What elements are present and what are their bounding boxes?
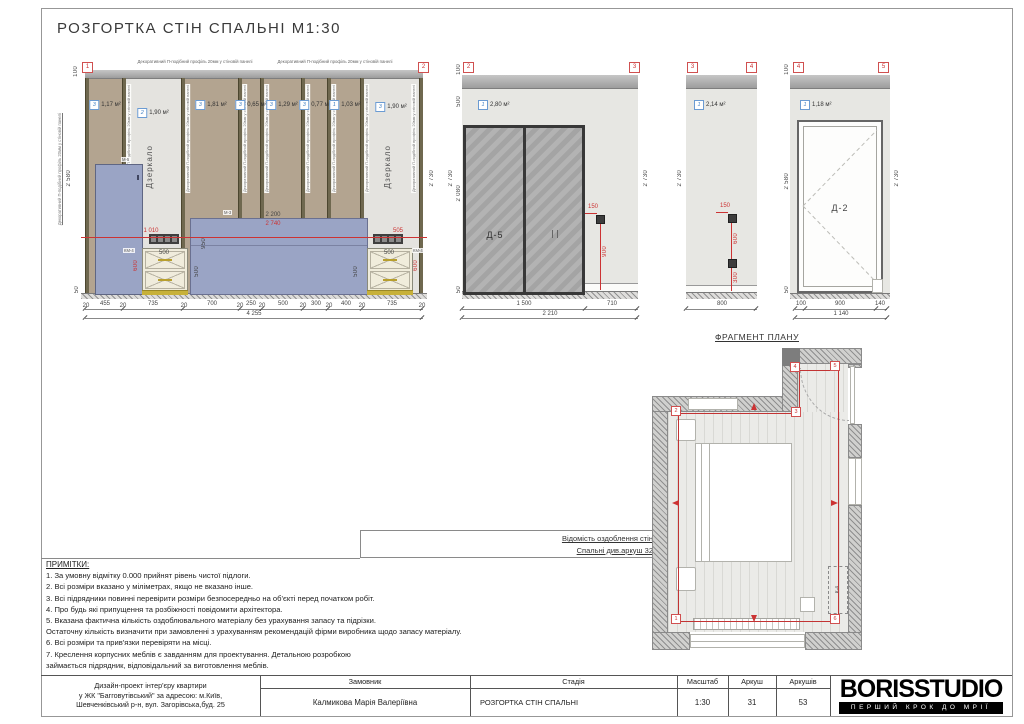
dim-line [462, 318, 638, 319]
dim-label: 20 [259, 303, 266, 309]
socket [728, 214, 737, 223]
finish-label: 12,80 м² [478, 100, 509, 110]
finish-code: 3 [235, 100, 245, 110]
project-info: Дизайн-проект інтер'єру квартири у ЖК "Б… [41, 675, 260, 716]
door-block [872, 279, 883, 293]
dim-total: 1 140 [833, 311, 848, 317]
dim-label: 20 [237, 303, 244, 309]
scale-label: Масштаб [677, 675, 728, 688]
door-leaf-plan [850, 366, 855, 424]
mattress-line [191, 245, 367, 246]
dim-label-red: 300 [733, 272, 739, 283]
dim-line [462, 309, 638, 310]
dim-label: 300 [311, 301, 321, 307]
dim-label: 500 [159, 250, 169, 256]
wall-shelf [149, 234, 179, 244]
dim-label: 140 [875, 301, 885, 307]
profile-note-vertical: Декоративний П-подібний профіль 20мм у с… [185, 84, 190, 193]
plan-marker: 3 [791, 407, 801, 417]
switch [596, 215, 605, 224]
dim-label: 710 [607, 301, 617, 307]
dim-label-red: 600 [133, 260, 139, 271]
nightstand-base [367, 290, 413, 295]
dim-label: 735 [387, 301, 397, 307]
dim-label: 50 [456, 286, 462, 293]
floor-hatch [686, 292, 757, 299]
dim-label: 500 [278, 301, 288, 307]
window [848, 458, 862, 505]
finish-label: 11,18 м² [800, 100, 831, 110]
dim-label: 1 500 [516, 301, 531, 307]
door-pane [526, 128, 583, 292]
dim-line [686, 309, 757, 310]
finish-schedule-note: Відомість оздоблення стін Спальні див.ар… [360, 530, 660, 558]
finish-code: 1 [478, 100, 488, 110]
nightstand-plan [676, 567, 696, 591]
wall-marker: 2 [463, 62, 474, 73]
dim-label: 20 [83, 303, 90, 309]
dim-label: 2 580 [66, 170, 72, 187]
pillow-line [709, 444, 710, 561]
dim-label: 100 [784, 64, 790, 75]
wall-marker: 4 [793, 62, 804, 73]
plan-marker: 2 [671, 406, 681, 416]
logo-slogan: ПЕРШИЙ КРОК ДО МРІЇ [839, 702, 1003, 714]
project-line: Шевченківський р-н, вул. Загорівська,буд… [76, 700, 225, 709]
profile-note-vertical: Декоративний П-подібний профіль 20мм у с… [411, 84, 416, 193]
bed-plan [695, 443, 792, 562]
dim-label-red: 2 740 [265, 221, 280, 227]
view-arrow-down [751, 615, 757, 622]
dim-label: 500 [353, 266, 359, 277]
drawer-handle [383, 259, 397, 261]
project-line: Дизайн-проект інтер'єру квартири [94, 681, 206, 690]
profile-note-vertical: Декоративний П-подібний профіль 20мм у с… [364, 84, 369, 193]
finish-code: 3 [195, 100, 205, 110]
radiator [693, 618, 800, 630]
finish-code: 1 [800, 100, 810, 110]
finish-code: 3 [375, 102, 385, 112]
headboard-line [701, 444, 702, 561]
dim-label-red: 1 010 [143, 228, 158, 234]
note-line: 2. Всі розміри вказано у міліметрах, якщ… [46, 581, 736, 592]
dim-label: 500 [384, 250, 394, 256]
dim-label: 100 [73, 66, 79, 77]
finish-code: 1 [329, 100, 339, 110]
plan-title: ФРАГМЕНТ ПЛАНУ [715, 332, 799, 342]
note-line: 3. Всі підрядники повинні перевірити роз… [46, 593, 736, 604]
nightstand-plan [676, 419, 696, 441]
door-d5 [463, 125, 585, 295]
sheets-total-label: Аркушів [776, 675, 830, 688]
note-line: 5. Вказана фактична кількість оздоблювал… [46, 615, 736, 626]
finish-code: 3 [89, 100, 99, 110]
dim-line-red [716, 212, 728, 213]
dim-label-red: 900 [602, 246, 608, 257]
view-arrow-right [831, 500, 838, 506]
dim-label: 500 [456, 96, 462, 107]
dim-label: 2 730 [677, 170, 683, 187]
dim-label: 700 [207, 301, 217, 307]
dim-label: 20 [181, 303, 188, 309]
drawer [145, 271, 185, 289]
furniture-tag: М-5 [121, 157, 130, 162]
dim-label: 20 [120, 303, 127, 309]
ceiling-profile [686, 75, 757, 89]
dim-label-red: 150 [720, 203, 730, 209]
finish-code: 3 [299, 100, 309, 110]
plan-marker: 5 [830, 361, 840, 371]
drawer-handle [158, 279, 172, 281]
profile-note-vertical: Декоративний П-подібний профіль 20мм у с… [57, 112, 62, 226]
finish-label: 11,03 м² [329, 100, 360, 110]
dim-label: 500 [194, 266, 200, 277]
finish-label: 31,17 м² [89, 100, 120, 110]
finish-label: 31,90 м² [375, 102, 406, 112]
dim-label: 2 580 [784, 173, 790, 190]
wall-marker: 3 [687, 62, 698, 73]
plan-wall [805, 632, 862, 650]
note-line: 1. За умовну відмітку 0.000 прийнят ріве… [46, 570, 736, 581]
dim-label: 20 [359, 303, 366, 309]
wall-34 [686, 88, 757, 285]
dim-label: 400 [341, 301, 351, 307]
note-line: Остаточну кількість визначити при замовл… [46, 626, 736, 637]
wardrobe [95, 164, 143, 295]
dim-line [795, 318, 887, 319]
sheets-total-value: 53 [776, 688, 830, 716]
finish-code: 1 [694, 100, 704, 110]
furniture-tag: КМ-4 [123, 248, 135, 253]
logo-text: BORISSTUDIO [835, 677, 1007, 701]
dim-label: 20 [300, 303, 307, 309]
finish-label: 30,77 м² [299, 100, 330, 110]
finish-label: 31,81 м² [195, 100, 226, 110]
project-line: у ЖК "Багговутівський" за адресою: м.Киї… [79, 691, 222, 700]
elevation-1: Декоративний П-подібний профіль 20мм у с… [85, 70, 423, 298]
dim-label-red: 600 [413, 260, 419, 271]
note-line: 4. Про будь які припущення та розбіжност… [46, 604, 736, 615]
dim-label-red: 150 [588, 204, 598, 210]
door-handle [552, 230, 553, 238]
ceiling-profile [85, 70, 423, 79]
plan-wall [848, 505, 862, 650]
dim-label: 20 [419, 303, 426, 309]
window-line [855, 459, 856, 504]
dim-label: 900 [835, 301, 845, 307]
dim-line-red [731, 223, 732, 291]
drawer-handle [158, 259, 172, 261]
view-line [678, 413, 679, 621]
finish-label: 31,29 м² [266, 100, 297, 110]
view-line [678, 621, 839, 622]
furniture-tag: КМ-4 [412, 248, 424, 253]
dim-label: 2 730 [894, 170, 900, 187]
dim-line [85, 318, 423, 319]
wall-marker: 1 [82, 62, 93, 73]
profile-note: Декоративний П-подібний профіль 20мм у с… [278, 59, 393, 64]
wall-marker: 4 [746, 62, 757, 73]
dim-label: 100 [456, 64, 462, 75]
dim-label-red: 505 [393, 228, 403, 234]
socket [728, 259, 737, 268]
finish-code: 2 [137, 108, 147, 118]
nightstand-base [142, 290, 188, 295]
dim-label: 455 [100, 301, 110, 307]
floor-hatch [790, 293, 890, 299]
dim-label: 2 730 [429, 170, 435, 187]
sheet-number-label: Аркуш [728, 675, 776, 688]
plan-marker: 6 [830, 614, 840, 624]
wall-marker: 3 [629, 62, 640, 73]
wardrobe-handle [137, 175, 139, 180]
bench-plan [800, 597, 815, 612]
note-line: 6. Всі розміри та прив'язки перевіряти н… [46, 637, 736, 648]
page-title: РОЗГОРТКА СТІН СПАЛЬНІ М1:30 [57, 20, 341, 37]
profile-strip [419, 78, 423, 293]
furniture-tag: М-3 [223, 210, 232, 215]
dim-line [85, 309, 423, 310]
door-tag: Д-2 [831, 203, 848, 213]
door-handle [557, 230, 558, 238]
dim-line-red [585, 213, 597, 214]
finish-schedule-line: Відомість оздоблення стін [361, 533, 653, 545]
bed [190, 218, 368, 295]
plan-marker: 4 [790, 362, 800, 372]
client-value: Калмикова Марія Валеріївна [260, 688, 470, 716]
wall-marker: 2 [418, 62, 429, 73]
separator [41, 558, 360, 559]
note-line: 7. Креслення корпусних меблів є завдання… [46, 649, 736, 660]
mirror-label: Дзеркало [383, 145, 392, 189]
dim-label: 2 730 [448, 170, 454, 187]
dim-label: 2 080 [456, 185, 462, 202]
notes-block: ПРИМІТКИ: 1. За умовну відмітку 0.000 пр… [46, 559, 736, 671]
built-in-cabinet [688, 398, 738, 410]
finish-label: 30,65 м² [235, 100, 266, 110]
profile-note: Декоративний П-подібний профіль 20мм у с… [138, 59, 253, 64]
plan-marker: 1 [671, 614, 681, 624]
wall-marker: 5 [878, 62, 889, 73]
finish-label: 12,14 м² [694, 100, 725, 110]
view-line [838, 370, 839, 621]
wall-shelf [373, 234, 403, 244]
dim-label: 50 [784, 286, 790, 293]
studio-logo: BORISSTUDIO ПЕРШИЙ КРОК ДО МРІЇ [830, 675, 1012, 716]
window [690, 634, 805, 648]
mirror-label: Дзеркало [145, 145, 154, 189]
note-line: займається підрядник, відповідальний за … [46, 660, 736, 671]
dim-total: 4 255 [246, 311, 261, 317]
dim-label: 2 730 [643, 170, 649, 187]
dim-label: 20 [326, 303, 333, 309]
ceiling-profile [462, 75, 638, 89]
view-line [678, 413, 800, 414]
socket-level-line [81, 237, 427, 238]
view-arrow-left [672, 500, 679, 506]
ceiling-profile [790, 75, 890, 89]
view-arrow-up [751, 403, 757, 410]
plan-wall [652, 632, 690, 650]
finish-schedule-line: Спальні див.аркуш 32 [361, 545, 653, 557]
dim-total: 2 210 [542, 311, 557, 317]
window-line [691, 641, 804, 642]
door-pane [466, 128, 523, 292]
stage-value: РОЗГОРТКА СТІН СПАЛЬНІ [470, 688, 677, 716]
plan-wall [652, 396, 668, 650]
dim-line-red [600, 224, 601, 290]
dim-label: 2 200 [265, 212, 280, 218]
sheet-number-value: 31 [728, 688, 776, 716]
dim-label-red: 600 [733, 233, 739, 244]
dim-label: 50 [74, 286, 80, 293]
dim-label: 735 [148, 301, 158, 307]
profile-strip [85, 78, 89, 293]
client-label: Замовник [260, 675, 470, 688]
door-tag: Д-5 [486, 230, 503, 240]
finish-code: 3 [266, 100, 276, 110]
notes-title: ПРИМІТКИ: [46, 559, 736, 570]
drawing-sheet: РОЗГОРТКА СТІН СПАЛЬНІ М1:30 1 2 Декорат… [0, 0, 1024, 724]
scale-value: 1:30 [677, 688, 728, 716]
drawer-handle [383, 279, 397, 281]
dim-label: 950 [201, 238, 207, 249]
finish-label: 21,90 м² [137, 108, 168, 118]
dim-label: 100 [796, 301, 806, 307]
dim-label: 800 [717, 301, 727, 307]
dim-label: 250 [246, 301, 256, 307]
drawer [370, 271, 410, 289]
plan-wall [848, 424, 862, 458]
stage-label: Стадія [470, 675, 677, 688]
